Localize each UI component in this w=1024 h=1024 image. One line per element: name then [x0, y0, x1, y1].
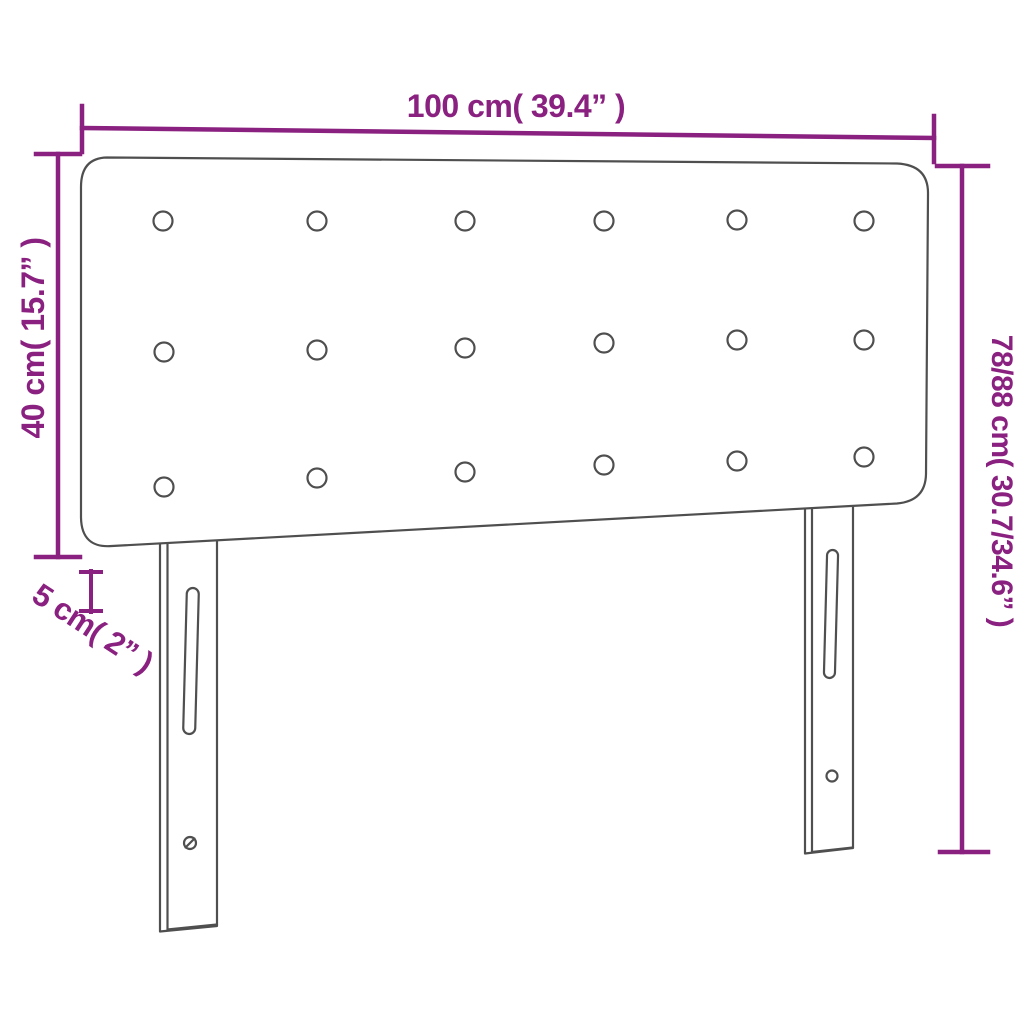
total-height-dimension-label: 78/88 cm( 30.7/34.6” ) — [985, 335, 1018, 628]
diagram-canvas: 100 cm( 39.4” ) 40 cm( 15.7” ) 78/88 cm(… — [0, 0, 1024, 1024]
board-height-dimension-label: 40 cm( 15.7” ) — [15, 237, 51, 438]
width-dimension-label: 100 cm( 39.4” ) — [407, 88, 625, 124]
headboard-panel — [81, 158, 928, 547]
total-height-dimension: 78/88 cm( 30.7/34.6” ) — [937, 166, 1018, 852]
right-leg — [805, 500, 853, 854]
left-leg — [160, 525, 217, 932]
board-height-dimension: 40 cm( 15.7” ) — [15, 154, 80, 557]
width-dimension-line — [82, 128, 934, 138]
headboard-dimension-diagram: 100 cm( 39.4” ) 40 cm( 15.7” ) 78/88 cm(… — [0, 0, 1024, 1024]
thickness-dimension: 5 cm( 2” ) — [26, 571, 159, 680]
width-dimension: 100 cm( 39.4” ) — [82, 88, 934, 162]
